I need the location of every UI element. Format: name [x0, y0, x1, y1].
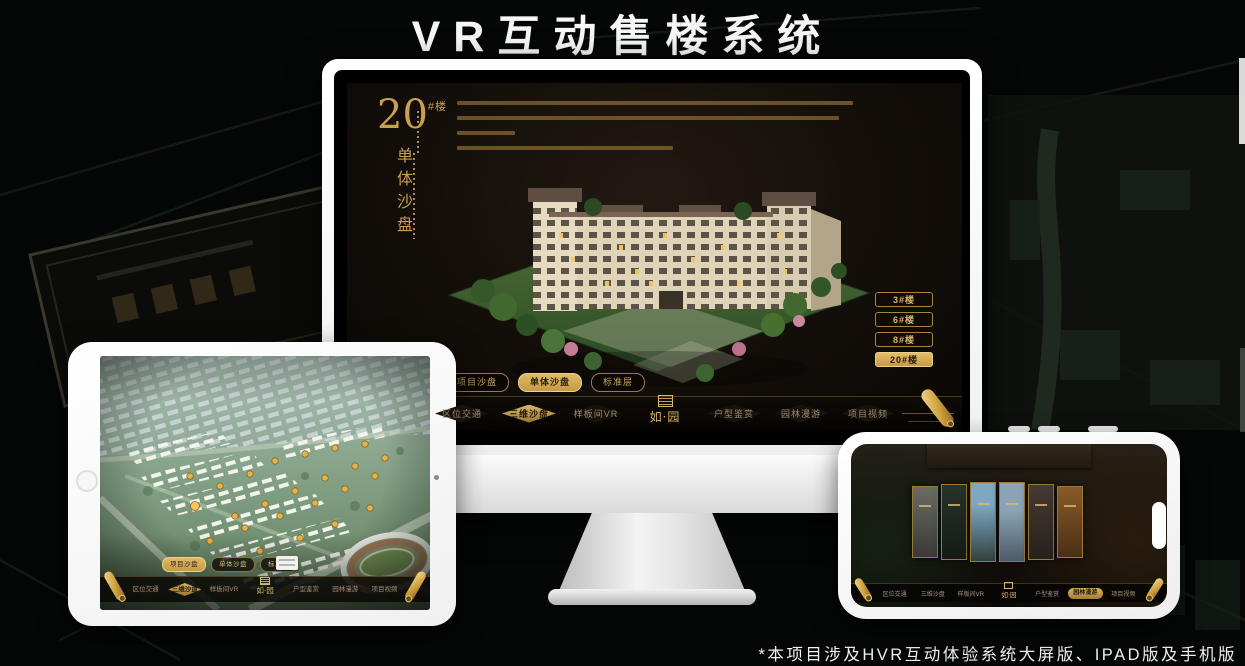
background-photo-edge: [1239, 58, 1245, 144]
phone-nav-location[interactable]: 区位交通: [877, 589, 912, 598]
gallery-panel-6[interactable]: [1057, 486, 1083, 558]
notch: [1152, 502, 1166, 549]
monitor-base: [548, 589, 756, 605]
brand-logo-text: 如·园: [634, 408, 696, 425]
building-block: [528, 188, 841, 311]
building-number: 20: [377, 92, 428, 138]
gallery-panel-3[interactable]: [970, 482, 996, 562]
tablet-nav-showroom-vr[interactable]: 样板间VR: [206, 582, 241, 597]
background-photo-edge-2: [1240, 348, 1245, 432]
phone-nav-3d-sandtable[interactable]: 三维沙盘: [915, 589, 950, 598]
nav-item-project-video[interactable]: 项目视频: [839, 403, 897, 425]
tablet-brand-logo: 如·园: [246, 577, 285, 596]
phone-brand-logo: 如·园: [991, 582, 1026, 599]
nav-item-garden-tour[interactable]: 园林漫游: [772, 403, 830, 425]
nav-item-location[interactable]: 区位交通: [433, 403, 491, 425]
tablet-device: 项目沙盘 单体沙盘 标准层 区位交通 三维沙盘 样板间VR 如·园 户型鉴赏 园…: [68, 342, 456, 626]
nav-item-3d-sandtable[interactable]: 三维沙盘: [500, 403, 558, 425]
tab-single-sandtable[interactable]: 单体沙盘: [518, 373, 582, 392]
floor-button-3[interactable]: 3#楼: [875, 292, 933, 307]
phone-nav-showroom-vr[interactable]: 样板间VR: [953, 589, 988, 598]
gallery-panel-5[interactable]: [1028, 484, 1054, 560]
camera-icon: [434, 475, 439, 480]
mode-tab-group: 项目沙盘 单体沙盘 标准层: [445, 373, 645, 392]
seal-icon: [658, 395, 673, 407]
footnote: *本项目涉及HVR互动体验系统大屏版、IPAD版及手机版: [758, 641, 1237, 665]
floor-button-6[interactable]: 6#楼: [875, 312, 933, 327]
vertical-caption-bar: [417, 111, 419, 153]
tablet-screen: 项目沙盘 单体沙盘 标准层 区位交通 三维沙盘 样板间VR 如·园 户型鉴赏 园…: [100, 356, 430, 610]
nav-item-showroom-vr[interactable]: 样板间VR: [567, 403, 625, 425]
tablet-tab-single-sandtable[interactable]: 单体沙盘: [211, 557, 255, 572]
phone-screen: 区位交通 三维沙盘 样板间VR 如·园 户型鉴赏 园林漫游 项目视频: [851, 444, 1167, 607]
building-3d-illustration: [443, 135, 875, 393]
floor-button-8[interactable]: 8#楼: [875, 332, 933, 347]
building-unit: #楼: [428, 101, 447, 113]
tooltip: [276, 556, 298, 570]
tablet-tab-project-sandtable[interactable]: 项目沙盘: [162, 557, 206, 572]
home-button-icon[interactable]: [76, 470, 98, 492]
floor-button-20[interactable]: 20#楼: [875, 352, 933, 367]
gallery-panel-1[interactable]: [912, 486, 938, 558]
nav-item-floorplans[interactable]: 户型鉴赏: [705, 403, 763, 425]
seal-icon: [260, 577, 270, 585]
phone-nav-project-video[interactable]: 项目视频: [1106, 589, 1141, 598]
ceiling-beam: [927, 444, 1091, 468]
page-title: VR互动售楼系统: [0, 2, 1245, 64]
tablet-nav-floorplans[interactable]: 户型鉴赏: [288, 582, 323, 597]
brand-logo: 如·园: [634, 395, 696, 425]
tablet-nav-project-video[interactable]: 项目视频: [367, 582, 402, 597]
phone-device: 区位交通 三维沙盘 样板间VR 如·园 户型鉴赏 园林漫游 项目视频: [838, 432, 1180, 619]
building-headline: 20#楼: [377, 95, 447, 135]
phone-nav-bar: 区位交通 三维沙盘 样板间VR 如·园 户型鉴赏 园林漫游 项目视频: [851, 583, 1167, 602]
tablet-nav-location[interactable]: 区位交通: [128, 582, 163, 597]
phone-nav-garden-tour[interactable]: 园林漫游: [1068, 588, 1103, 599]
gallery-panel-4[interactable]: [999, 482, 1025, 562]
tablet-nav-bar: 区位交通 三维沙盘 样板间VR 如·园 户型鉴赏 园林漫游 项目视频: [100, 576, 430, 602]
vertical-caption-bar-2: [413, 153, 415, 239]
tablet-nav-garden-tour[interactable]: 园林漫游: [328, 582, 363, 597]
tablet-nav-3d-sandtable[interactable]: 三维沙盘: [167, 582, 202, 597]
phone-nav-floorplans[interactable]: 户型鉴赏: [1030, 589, 1065, 598]
tab-standard-floor[interactable]: 标准层: [591, 373, 645, 392]
seal-icon: [1004, 582, 1013, 589]
promo-page: VR互动售楼系统 *本项目涉及HVR互动体验系统大屏版、IPAD版及手机版 20…: [0, 0, 1245, 666]
floor-button-group: 3#楼 6#楼 8#楼 20#楼: [875, 292, 935, 372]
headline-subtitle: 单体沙盘: [391, 147, 415, 239]
gallery-panel-2[interactable]: [941, 484, 967, 560]
